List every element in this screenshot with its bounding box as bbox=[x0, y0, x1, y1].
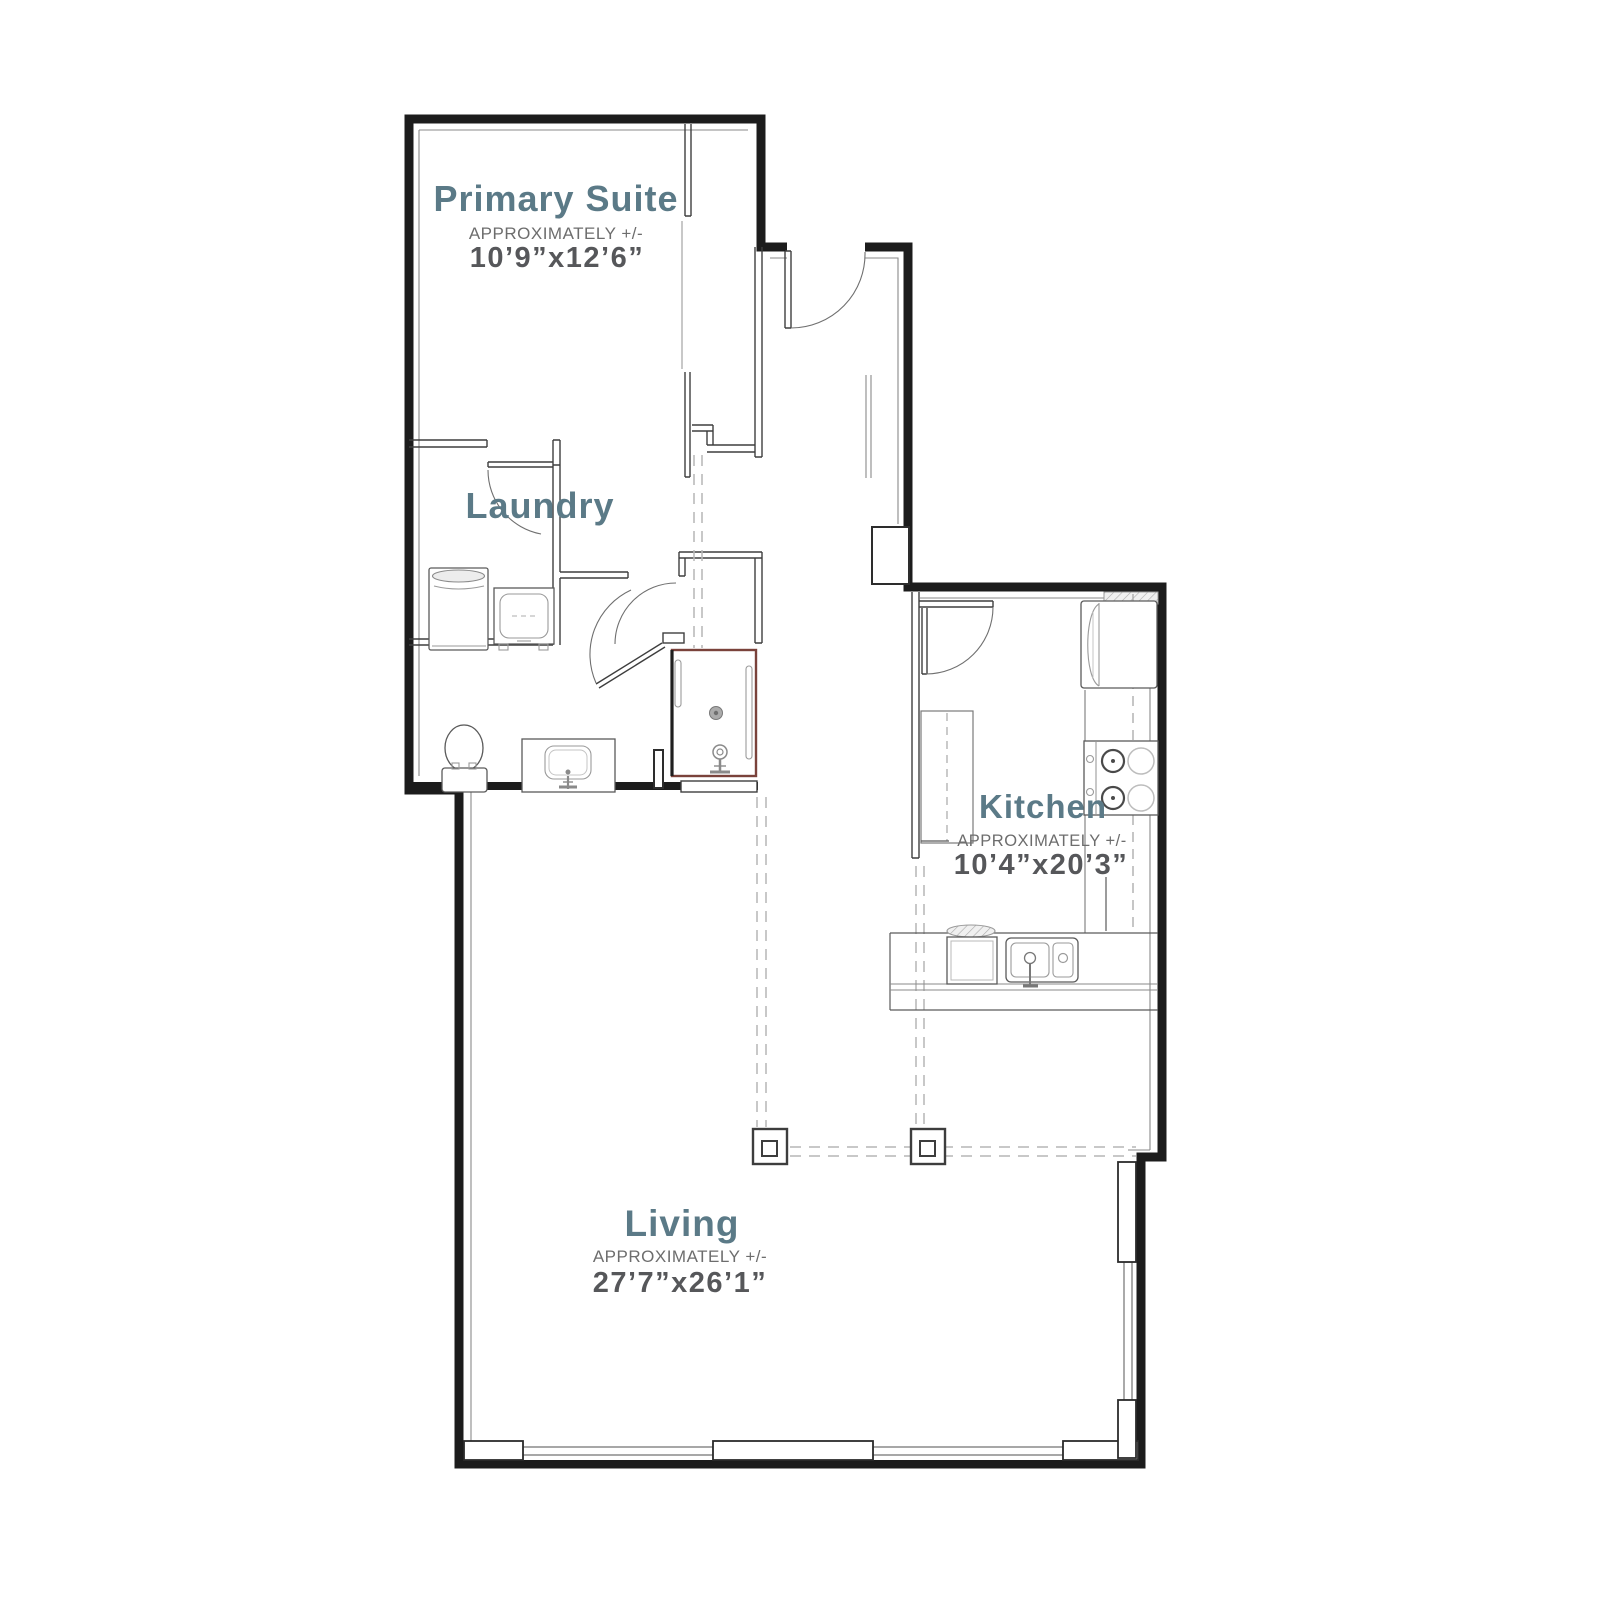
entry-door bbox=[785, 239, 865, 328]
shower-icon bbox=[672, 650, 756, 776]
windows-bottom bbox=[464, 1441, 1138, 1460]
refrigerator-icon bbox=[1081, 601, 1157, 688]
window-right bbox=[1118, 1162, 1136, 1458]
hall-chase bbox=[866, 375, 871, 478]
shower-curb bbox=[681, 781, 757, 792]
kitchen-door bbox=[919, 601, 993, 674]
wall-pilaster bbox=[872, 527, 909, 584]
pantry-cabinet-icon bbox=[921, 711, 973, 843]
closet-door-stub bbox=[663, 633, 684, 643]
dryer-icon bbox=[494, 588, 554, 650]
toilet-icon bbox=[442, 725, 487, 792]
living-label: Living bbox=[625, 1203, 740, 1244]
structural-column bbox=[911, 1129, 945, 1164]
washer-icon bbox=[429, 568, 488, 650]
kitchen-dims: 10’4”x20’3” bbox=[954, 849, 1129, 881]
cooktop-vent-icon bbox=[947, 925, 995, 937]
primary-suite-dims: 10’9”x12’6” bbox=[470, 242, 645, 274]
structural-column bbox=[753, 1129, 787, 1164]
living-approx: APPROXIMATELY +/- bbox=[593, 1247, 767, 1266]
kitchen-label: Kitchen bbox=[979, 788, 1107, 825]
laundry-label: Laundry bbox=[465, 485, 614, 526]
dishwasher-icon bbox=[947, 937, 997, 984]
floor-plan-svg: Primary Suite APPROXIMATELY +/- 10’9”x12… bbox=[0, 0, 1600, 1600]
floor-plan-page: Primary Suite APPROXIMATELY +/- 10’9”x12… bbox=[0, 0, 1600, 1600]
shower-stub-wall bbox=[654, 750, 663, 788]
kitchen-approx: APPROXIMATELY +/- bbox=[957, 832, 1126, 850]
primary-suite-label: Primary Suite bbox=[433, 178, 678, 219]
kitchen-sink-icon bbox=[1006, 938, 1078, 986]
primary-suite-approx: APPROXIMATELY +/- bbox=[469, 224, 643, 243]
vanity-sink-icon bbox=[522, 739, 615, 792]
living-dims: 27’7”x26’1” bbox=[593, 1267, 768, 1299]
